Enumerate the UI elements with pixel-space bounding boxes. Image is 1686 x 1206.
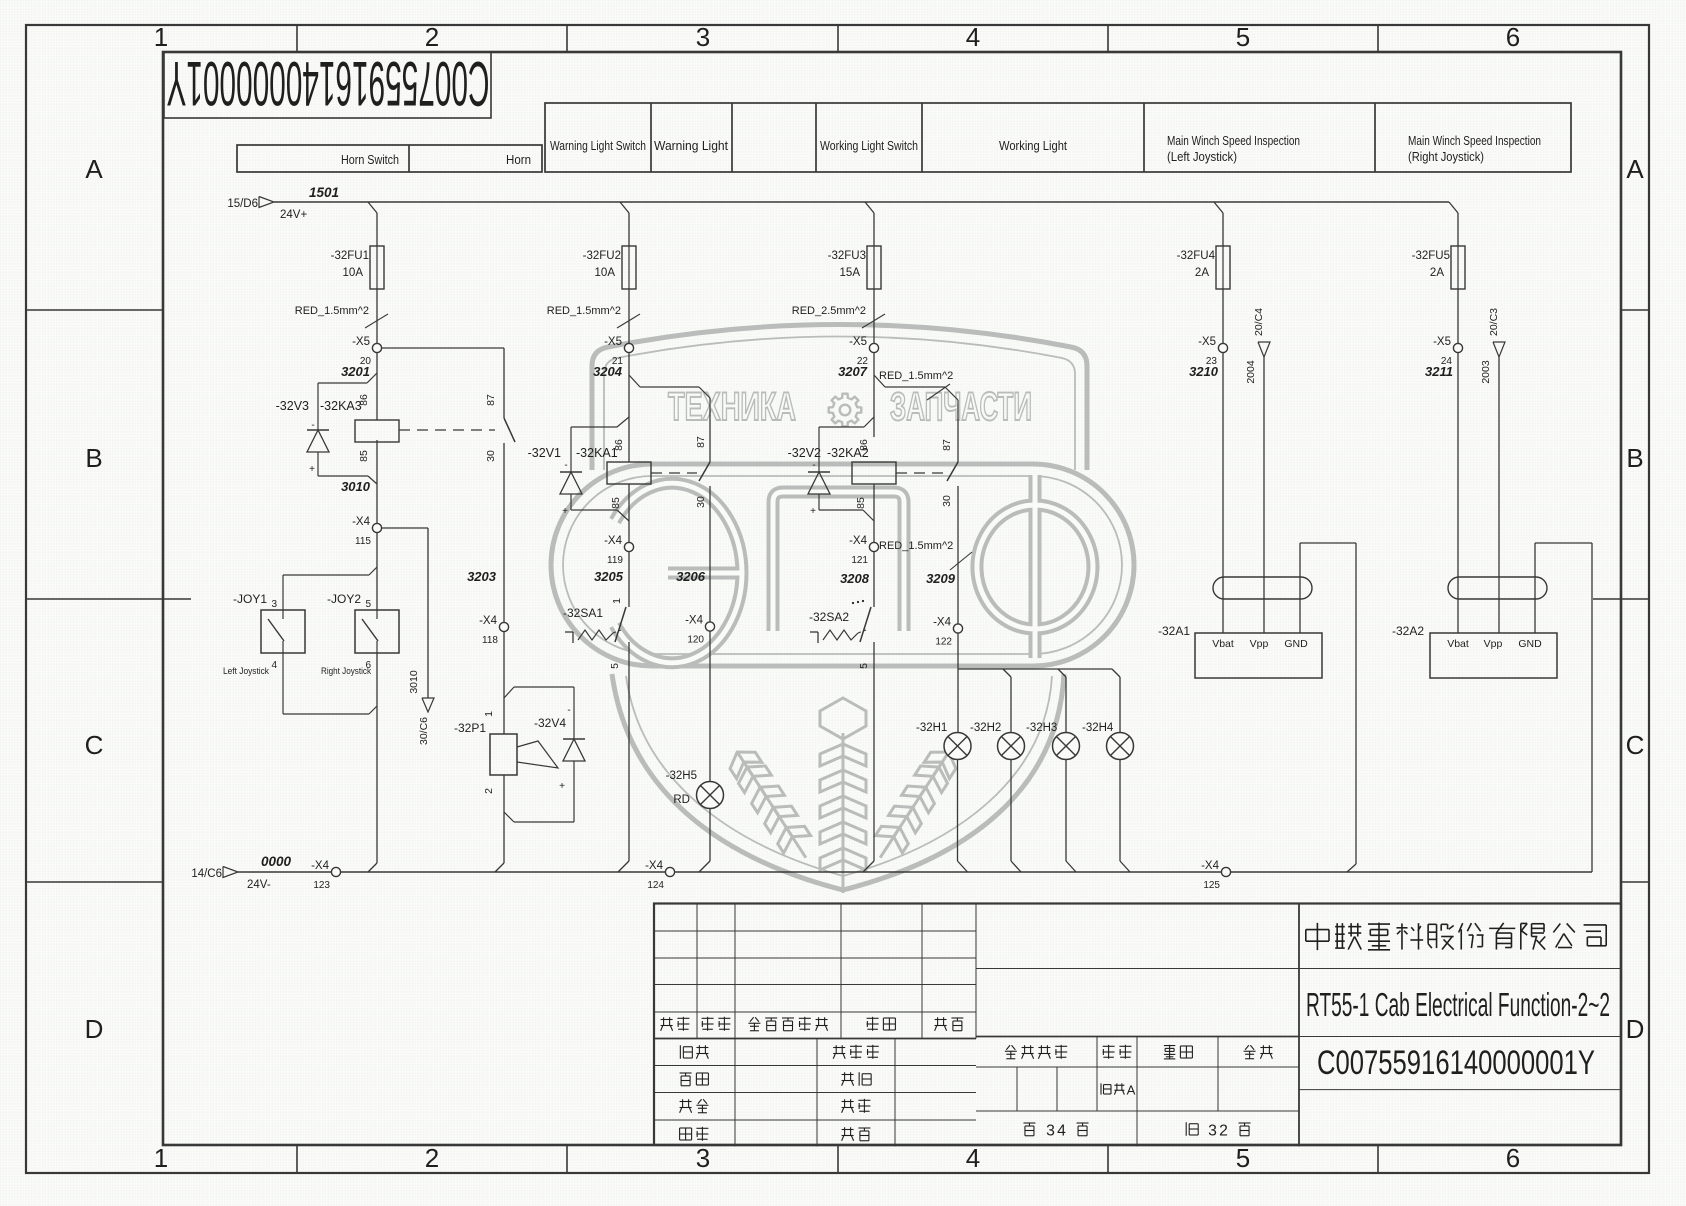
svg-text:-32FU4: -32FU4 bbox=[1177, 250, 1216, 262]
svg-text:C00755916140000001Y: C00755916140000001Y bbox=[1317, 1044, 1595, 1082]
svg-text:-32SA2: -32SA2 bbox=[809, 610, 849, 624]
svg-text:-JOY2: -JOY2 bbox=[327, 592, 361, 606]
svg-text:3: 3 bbox=[1046, 1122, 1055, 1139]
svg-text:3211: 3211 bbox=[1425, 364, 1453, 379]
svg-text:+: + bbox=[309, 464, 315, 475]
svg-text:3010: 3010 bbox=[408, 670, 420, 694]
svg-text:1501: 1501 bbox=[309, 185, 339, 200]
svg-text:-X5: -X5 bbox=[604, 336, 622, 348]
svg-text:24V+: 24V+ bbox=[280, 209, 307, 221]
svg-text:-32P1: -32P1 bbox=[454, 721, 486, 735]
svg-text:15/D6: 15/D6 bbox=[227, 198, 258, 210]
svg-text:Vpp: Vpp bbox=[1484, 638, 1503, 650]
svg-text:A: A bbox=[85, 154, 103, 184]
svg-text:14/C6: 14/C6 bbox=[191, 868, 222, 880]
svg-text:85: 85 bbox=[358, 450, 370, 462]
svg-text:+: + bbox=[559, 781, 565, 792]
svg-text:5: 5 bbox=[1236, 1143, 1250, 1173]
svg-text:85: 85 bbox=[610, 497, 622, 509]
svg-text:(Right Joystick): (Right Joystick) bbox=[1408, 150, 1484, 164]
svg-text:24V-: 24V- bbox=[247, 879, 271, 891]
svg-text:5: 5 bbox=[858, 663, 870, 669]
svg-text:3209: 3209 bbox=[926, 571, 956, 586]
svg-text:-: - bbox=[564, 460, 567, 471]
svg-text:Right Joystick: Right Joystick bbox=[321, 666, 371, 677]
svg-text:-32H5: -32H5 bbox=[666, 770, 697, 782]
svg-text:-32FU5: -32FU5 bbox=[1412, 250, 1450, 262]
svg-text:D: D bbox=[1626, 1014, 1645, 1044]
svg-text:122: 122 bbox=[935, 637, 952, 648]
svg-text:-32V4: -32V4 bbox=[534, 716, 566, 730]
svg-text:30: 30 bbox=[941, 495, 953, 507]
svg-text:Vbat: Vbat bbox=[1212, 638, 1234, 650]
svg-text:5: 5 bbox=[609, 663, 621, 669]
svg-text:10A: 10A bbox=[595, 267, 616, 279]
svg-text:-32H1: -32H1 bbox=[916, 722, 947, 734]
svg-text:-: - bbox=[812, 460, 815, 471]
svg-text:125: 125 bbox=[1203, 880, 1220, 891]
svg-text:-JOY1: -JOY1 bbox=[233, 592, 267, 606]
svg-text:120: 120 bbox=[687, 635, 704, 646]
svg-text:-X4: -X4 bbox=[311, 860, 330, 872]
svg-text:C: C bbox=[1626, 730, 1645, 760]
svg-text:3203: 3203 bbox=[467, 569, 497, 584]
svg-text:D: D bbox=[85, 1014, 104, 1044]
svg-text:GND: GND bbox=[1518, 638, 1542, 650]
svg-text:1: 1 bbox=[154, 1143, 168, 1173]
svg-text:A: A bbox=[1127, 1082, 1136, 1097]
svg-text:-32FU3: -32FU3 bbox=[828, 250, 866, 262]
svg-text:3206: 3206 bbox=[676, 569, 706, 584]
svg-text:115: 115 bbox=[355, 536, 371, 547]
svg-text:10A: 10A bbox=[343, 267, 364, 279]
svg-text:2: 2 bbox=[425, 22, 439, 52]
svg-text:4: 4 bbox=[271, 660, 277, 671]
svg-text:-32H3: -32H3 bbox=[1026, 722, 1057, 734]
svg-text:2A: 2A bbox=[1430, 267, 1444, 279]
svg-text:87: 87 bbox=[695, 436, 707, 448]
svg-text:3: 3 bbox=[271, 599, 277, 610]
svg-text:-X4: -X4 bbox=[352, 516, 371, 528]
svg-text:3208: 3208 bbox=[840, 571, 870, 586]
svg-text:-32V1: -32V1 bbox=[528, 446, 561, 460]
svg-text:121: 121 bbox=[851, 555, 868, 566]
svg-text:1: 1 bbox=[483, 711, 495, 717]
svg-text:86: 86 bbox=[858, 439, 870, 451]
svg-text:-32KA1: -32KA1 bbox=[576, 446, 618, 460]
svg-text:Vbat: Vbat bbox=[1447, 638, 1469, 650]
svg-text:Working Light: Working Light bbox=[999, 139, 1067, 153]
svg-text:-: - bbox=[567, 705, 570, 716]
svg-text:1: 1 bbox=[154, 22, 168, 52]
svg-text:15A: 15A bbox=[840, 267, 861, 279]
svg-text:Working Light Switch: Working Light Switch bbox=[820, 139, 918, 153]
svg-text:-32V2: -32V2 bbox=[788, 446, 821, 460]
svg-text:30: 30 bbox=[695, 496, 707, 508]
svg-text:85: 85 bbox=[855, 497, 867, 509]
svg-text:-: - bbox=[311, 420, 314, 431]
svg-text:119: 119 bbox=[607, 555, 623, 566]
svg-text:2: 2 bbox=[425, 1143, 439, 1173]
svg-text:-32A2: -32A2 bbox=[1392, 624, 1424, 638]
svg-text:Main Winch Speed Inspection: Main Winch Speed Inspection bbox=[1167, 134, 1300, 148]
svg-text:C: C bbox=[85, 730, 104, 760]
svg-text:-X4: -X4 bbox=[849, 535, 868, 547]
svg-text:2: 2 bbox=[1219, 1122, 1228, 1139]
svg-text:3207: 3207 bbox=[838, 364, 868, 379]
svg-text:1: 1 bbox=[611, 598, 623, 604]
svg-text:RT55-1 Cab Electrical Function: RT55-1 Cab Electrical Function-2~2 bbox=[1306, 986, 1610, 1023]
svg-text:118: 118 bbox=[482, 635, 498, 646]
svg-text:2: 2 bbox=[483, 788, 495, 794]
svg-text:-32KA3: -32KA3 bbox=[320, 399, 362, 413]
svg-text:-X5: -X5 bbox=[849, 336, 867, 348]
svg-text:2A: 2A bbox=[1195, 267, 1209, 279]
svg-text:-X4: -X4 bbox=[933, 617, 952, 629]
svg-text:C00755916140000001Y: C00755916140000001Y bbox=[166, 48, 489, 118]
svg-text:B: B bbox=[85, 443, 102, 473]
svg-text:+: + bbox=[810, 506, 816, 517]
svg-text:86: 86 bbox=[613, 439, 625, 451]
svg-text:2003: 2003 bbox=[1480, 360, 1492, 384]
svg-text:4: 4 bbox=[1057, 1122, 1066, 1139]
svg-text:-32H2: -32H2 bbox=[970, 722, 1001, 734]
svg-text:3201: 3201 bbox=[341, 364, 370, 379]
svg-text:-32FU2: -32FU2 bbox=[583, 250, 621, 262]
svg-text:RED_1.5mm^2: RED_1.5mm^2 bbox=[879, 370, 953, 382]
svg-text:0000: 0000 bbox=[261, 854, 292, 869]
svg-text:4: 4 bbox=[966, 22, 980, 52]
svg-text:3: 3 bbox=[696, 1143, 710, 1173]
svg-text:3: 3 bbox=[1208, 1122, 1217, 1139]
svg-text:3: 3 bbox=[696, 22, 710, 52]
svg-text:3205: 3205 bbox=[594, 569, 624, 584]
svg-text:+: + bbox=[562, 506, 568, 517]
svg-text:124: 124 bbox=[647, 880, 664, 891]
svg-text:RED_1.5mm^2: RED_1.5mm^2 bbox=[295, 305, 369, 317]
svg-text:-32H4: -32H4 bbox=[1082, 722, 1114, 734]
svg-text:-X5: -X5 bbox=[1198, 336, 1216, 348]
svg-text:-X5: -X5 bbox=[352, 336, 370, 348]
svg-text:4: 4 bbox=[966, 1143, 980, 1173]
svg-text:ТЕХНИКА: ТЕХНИКА bbox=[668, 385, 796, 429]
svg-text:20/C4: 20/C4 bbox=[1253, 308, 1265, 336]
svg-text:Warning Light Switch: Warning Light Switch bbox=[550, 139, 646, 153]
svg-text:-X5: -X5 bbox=[1433, 336, 1451, 348]
svg-text:5: 5 bbox=[1236, 22, 1250, 52]
svg-text:-X4: -X4 bbox=[604, 535, 623, 547]
svg-text:Left Joystick: Left Joystick bbox=[223, 666, 269, 677]
svg-text:3204: 3204 bbox=[593, 364, 623, 379]
svg-text:6: 6 bbox=[1506, 1143, 1520, 1173]
svg-text:Main Winch Speed Inspection: Main Winch Speed Inspection bbox=[1408, 134, 1541, 148]
svg-text:Horn Switch: Horn Switch bbox=[341, 153, 399, 167]
svg-text:87: 87 bbox=[485, 394, 497, 406]
svg-text:A: A bbox=[1626, 154, 1644, 184]
svg-text:ЗАПЧАСТИ: ЗАПЧАСТИ bbox=[890, 385, 1032, 429]
svg-text:B: B bbox=[1626, 443, 1643, 473]
svg-text:-X4: -X4 bbox=[645, 860, 664, 872]
svg-text:5: 5 bbox=[365, 599, 371, 610]
svg-text:2004: 2004 bbox=[1245, 360, 1257, 384]
svg-text:-32FU1: -32FU1 bbox=[331, 250, 369, 262]
svg-text:6: 6 bbox=[1506, 22, 1520, 52]
svg-text:-X4: -X4 bbox=[479, 615, 498, 627]
svg-text:-32SA1: -32SA1 bbox=[563, 606, 603, 620]
svg-text:RED_2.5mm^2: RED_2.5mm^2 bbox=[792, 305, 866, 317]
svg-text:Warning Light: Warning Light bbox=[654, 139, 728, 153]
svg-text:3210: 3210 bbox=[1189, 364, 1219, 379]
svg-text:3010: 3010 bbox=[341, 479, 371, 494]
svg-text:30: 30 bbox=[485, 450, 497, 462]
svg-text:RED_1.5mm^2: RED_1.5mm^2 bbox=[879, 540, 953, 552]
svg-text:20/C3: 20/C3 bbox=[1488, 308, 1500, 336]
svg-text:Horn: Horn bbox=[506, 153, 531, 167]
svg-text:(Left Joystick): (Left Joystick) bbox=[1167, 150, 1237, 164]
svg-text:-32A1: -32A1 bbox=[1158, 624, 1190, 638]
svg-text:-X4: -X4 bbox=[1201, 860, 1220, 872]
svg-text:RED_1.5mm^2: RED_1.5mm^2 bbox=[547, 305, 621, 317]
svg-text:GND: GND bbox=[1284, 638, 1308, 650]
svg-text:-X4: -X4 bbox=[685, 615, 704, 627]
svg-text:-32V3: -32V3 bbox=[276, 399, 309, 413]
svg-text:RD: RD bbox=[673, 794, 690, 806]
svg-text:30/C6: 30/C6 bbox=[418, 717, 430, 745]
svg-text:123: 123 bbox=[313, 880, 330, 891]
svg-text:86: 86 bbox=[358, 394, 370, 406]
svg-text:Vpp: Vpp bbox=[1250, 638, 1269, 650]
svg-text:87: 87 bbox=[941, 439, 953, 451]
